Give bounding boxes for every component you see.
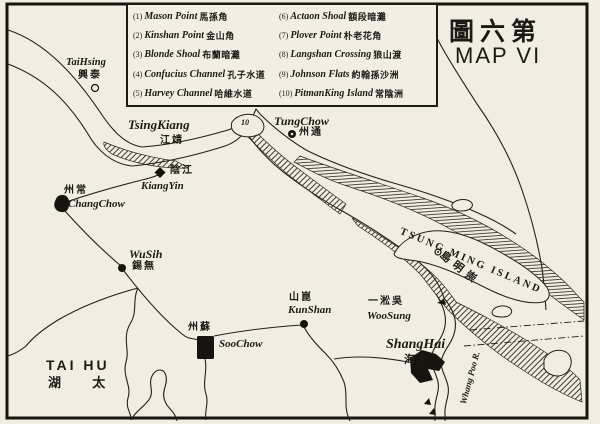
- legend-number: (7): [279, 31, 288, 40]
- map-vi-sheet: (1)Mason Point馬孫角 (2)Kinshan Point金山角 (3…: [0, 0, 600, 424]
- legend-item: (4)Confucius Channel孔子水道: [133, 65, 279, 84]
- taihu-east-shore: [125, 288, 138, 420]
- label-wusih-en: WuSih: [129, 248, 162, 260]
- label-kunshan-en: KunShan: [288, 305, 331, 316]
- legend-item: (7)Plover Point朴老花角: [279, 26, 434, 45]
- legend-number: (10): [279, 89, 292, 98]
- label-taihu-zh: 湖 太: [48, 376, 119, 389]
- legend-number: (3): [133, 50, 142, 59]
- legend-zh: 馬孫角: [199, 10, 228, 23]
- label-shanghai-en: ShangHai: [386, 338, 445, 352]
- taihu-north-shore: [8, 288, 138, 356]
- legend-zh: 孔子水道: [227, 68, 265, 81]
- railway-changchow-wusih: [64, 210, 121, 266]
- taihu-peninsula: [131, 370, 177, 421]
- map-title-en: MAP VI: [455, 43, 541, 69]
- legend-item: (2)Kinshan Point金山角: [133, 26, 279, 45]
- label-changchow-en: ChangChow: [68, 199, 125, 210]
- label-woosung-en: WooSung: [367, 311, 411, 322]
- legend-zh: 狼山渡: [373, 48, 402, 61]
- legend-name: Mason Point: [144, 11, 197, 22]
- label-soochow-zh: 州蘇: [188, 323, 212, 333]
- legend-item: (1)Mason Point馬孫角: [133, 7, 279, 26]
- islet-north-flats: [452, 200, 473, 211]
- railway-soochow-kunshan: [214, 325, 302, 336]
- legend-item: (8)Langshan Crossing狼山渡: [279, 45, 434, 64]
- label-tungchow-zh: 州通: [299, 128, 323, 138]
- legend-item: (10)PitmanKing Island常陰洲: [279, 84, 434, 103]
- soochow-stream: [205, 359, 207, 420]
- label-changchow-zh: 州常: [64, 186, 88, 196]
- legend-number: (9): [279, 70, 288, 79]
- tungchow-marker-center: [291, 133, 294, 136]
- legend-number: (4): [133, 70, 142, 79]
- islet-south-channel: [492, 306, 512, 317]
- legend-name: Plover Point: [290, 30, 341, 41]
- kunshan-stream: [304, 327, 350, 421]
- legend-zh: 金山角: [206, 29, 235, 42]
- label-shanghai-zh: 海上: [404, 355, 430, 366]
- label-kunshan-zh: 山崑: [289, 293, 313, 303]
- label-tsingkiang-zh: 江靖: [160, 136, 184, 146]
- legend-zh: 哈維水道: [214, 87, 252, 100]
- legend-item: (9)Johnson Flats約翰孫沙洲: [279, 65, 434, 84]
- legend-name: Harvey Channel: [144, 88, 212, 99]
- label-taihsing-zh: 興泰: [78, 71, 102, 81]
- legend-zh: 布蘭暗灘: [202, 48, 240, 61]
- soochow-creek: [334, 357, 408, 362]
- label-taihu-en: TAI HU: [46, 358, 110, 372]
- legend-zh: 常陰洲: [375, 87, 404, 100]
- legend-number: (8): [279, 50, 288, 59]
- soochow-marker: [197, 336, 214, 359]
- wusih-marker: [118, 264, 126, 272]
- taihsing-marker: [92, 85, 99, 92]
- changchow-marker: [54, 195, 69, 212]
- islet-southeast: [544, 350, 571, 376]
- kunshan-marker: [300, 320, 308, 328]
- legend-name: Johnson Flats: [290, 69, 349, 80]
- legend-name: Blonde Shoal: [144, 49, 200, 60]
- legend-name: Confucius Channel: [144, 69, 225, 80]
- label-taihsing-en: TaiHsing: [66, 58, 106, 69]
- legend-number: (6): [279, 12, 288, 21]
- legend-name: Actaon Shoal: [290, 11, 346, 22]
- label-wusih-zh: 錫無: [132, 262, 156, 272]
- legend-name: PitmanKing Island: [294, 88, 373, 99]
- legend-item: (6)Actaon Shoal額段暗灘: [279, 7, 434, 26]
- legend-item: (5)Harvey Channel哈維水道: [133, 84, 279, 103]
- label-tungchow-en: TungChow: [274, 115, 329, 127]
- label-kiangyin-zh: 陰江: [170, 166, 194, 176]
- label-pitman-island-number: 10: [241, 119, 249, 127]
- legend-box: (1)Mason Point馬孫角 (2)Kinshan Point金山角 (3…: [126, 3, 438, 107]
- legend-number: (2): [133, 31, 142, 40]
- label-woosung-zh: 一淞吳: [368, 297, 404, 307]
- legend-name: Langshan Crossing: [290, 49, 371, 60]
- whangpoo-boat-mark-1: [424, 398, 431, 405]
- legend-number: (1): [133, 12, 142, 21]
- legend-name: Kinshan Point: [144, 30, 204, 41]
- legend-item: (3)Blonde Shoal布蘭暗灘: [133, 45, 279, 64]
- legend-zh: 朴老花角: [344, 29, 382, 42]
- legend-number: (5): [133, 89, 142, 98]
- label-kiangyin-en: KiangYin: [141, 181, 184, 192]
- whangpoo-east-bank: [441, 298, 455, 421]
- legend-zh: 額段暗灘: [348, 10, 386, 23]
- label-tsingkiang-en: TsingKiang: [128, 118, 190, 131]
- label-soochow-en: SooChow: [219, 339, 262, 350]
- legend-zh: 約翰孫沙洲: [352, 68, 400, 81]
